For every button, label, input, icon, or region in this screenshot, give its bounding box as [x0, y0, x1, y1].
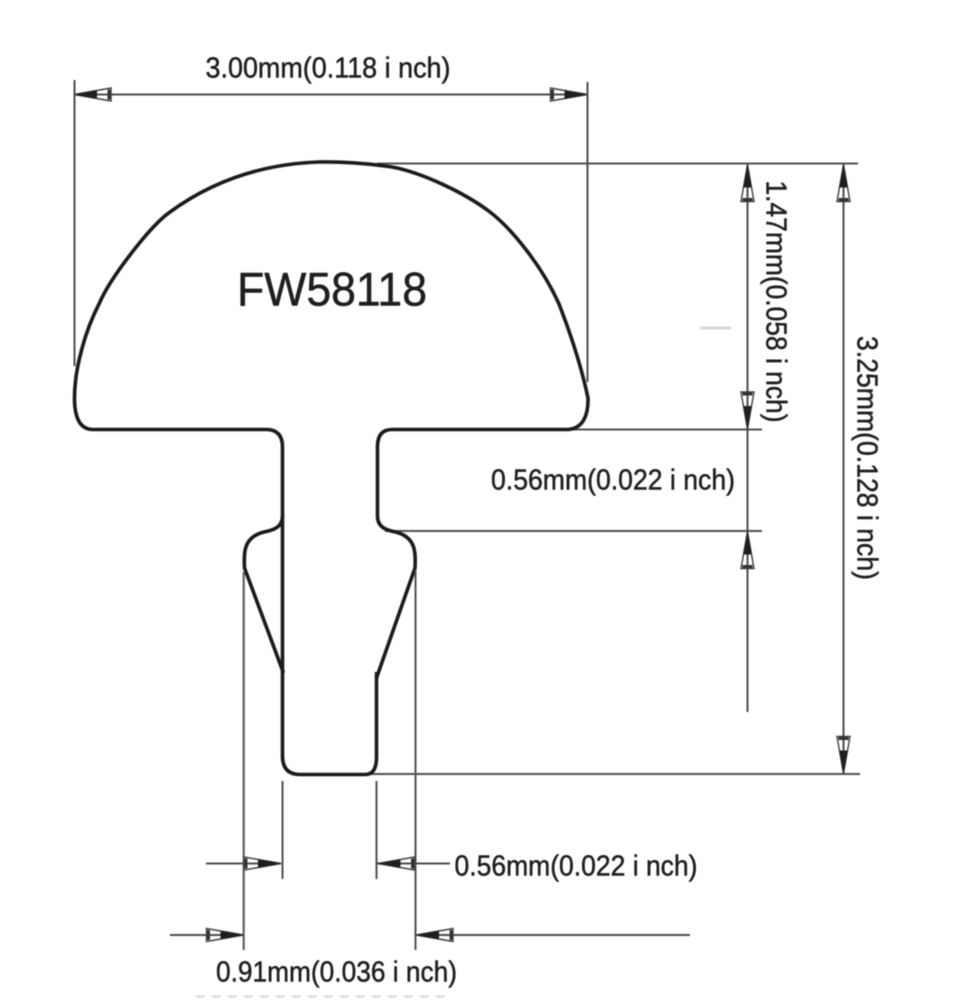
svg-text:0.56mm(0.022 i nch): 0.56mm(0.022 i nch)	[455, 851, 698, 883]
svg-text:FW58118: FW58118	[237, 263, 427, 316]
svg-text:1.47mm(0.058 i nch): 1.47mm(0.058 i nch)	[760, 181, 792, 423]
svg-text:3.25mm(0.128 i nch): 3.25mm(0.128 i nch)	[851, 336, 883, 580]
svg-text:0.91mm(0.036 i nch): 0.91mm(0.036 i nch)	[216, 957, 457, 989]
svg-text:0.56mm(0.022 i nch): 0.56mm(0.022 i nch)	[491, 465, 735, 497]
svg-text:3.00mm(0.118 i nch): 3.00mm(0.118 i nch)	[206, 53, 451, 85]
